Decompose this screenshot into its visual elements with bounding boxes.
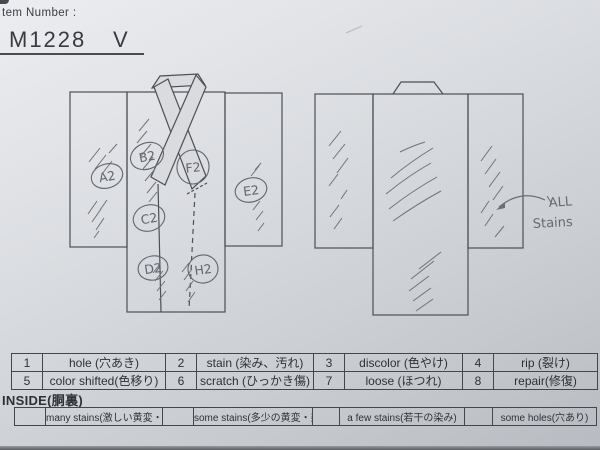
legend-label-stain: stain (染み、汚れ) bbox=[197, 354, 314, 372]
svg-text:C2: C2 bbox=[140, 210, 159, 228]
legend-num-4: 4 bbox=[463, 354, 494, 372]
svg-text:E2: E2 bbox=[242, 182, 260, 199]
legend-num-5: 5 bbox=[12, 372, 43, 390]
inside-option-some-holes: some holes(穴あり) bbox=[493, 408, 597, 426]
damage-marker-e2: E2 bbox=[232, 174, 269, 205]
legend-num-2: 2 bbox=[166, 354, 197, 372]
front-seam-line bbox=[158, 184, 161, 312]
legend-label-hole: hole (穴あき) bbox=[43, 354, 166, 372]
back-left-sleeve bbox=[315, 94, 373, 248]
legend-label-discolor: discolor (色やけ) bbox=[345, 354, 463, 372]
legend-label-rip: rip (裂け) bbox=[494, 354, 598, 372]
annotation-line1: ALL bbox=[548, 194, 573, 211]
back-hatch-marks bbox=[329, 131, 504, 311]
annotation-line2: Stains bbox=[532, 215, 573, 232]
legend-label-scratch: scratch (ひっかき傷) bbox=[197, 372, 314, 390]
damage-legend-table: 1 hole (穴あき) 2 stain (染み、汚れ) 3 discolor … bbox=[11, 353, 598, 390]
front-right-sleeve bbox=[225, 93, 282, 246]
svg-text:D2: D2 bbox=[143, 260, 162, 277]
inside-option-many-stains: many stains(激しい黄変・染み) bbox=[46, 408, 163, 426]
svg-text:H2: H2 bbox=[193, 261, 212, 278]
legend-num-3: 3 bbox=[314, 354, 345, 372]
annotation-arrow bbox=[499, 196, 545, 207]
paper-scratch-mark bbox=[346, 26, 362, 33]
legend-label-loose: loose (ほつれ) bbox=[345, 372, 463, 390]
legend-num-8: 8 bbox=[463, 372, 494, 390]
inside-checkbox-cell-2 bbox=[163, 408, 194, 426]
legend-num-6: 6 bbox=[166, 372, 197, 390]
back-right-sleeve bbox=[468, 94, 523, 248]
svg-text:F2: F2 bbox=[185, 159, 202, 176]
kimono-inspection-sheet: tem Number : M1228 V bbox=[0, 0, 600, 450]
inside-row: many stains(激しい黄変・染み) some stains(多少の黄変・… bbox=[15, 408, 597, 426]
inside-checkbox-cell-4 bbox=[465, 408, 493, 426]
legend-label-repair: repair(修復) bbox=[494, 372, 598, 390]
back-collar bbox=[393, 82, 443, 94]
inside-option-some-stains: some stains(多少の黄変・染み) bbox=[194, 408, 313, 426]
inside-option-a-few-stains: a few stains(若干の染み) bbox=[340, 408, 465, 426]
inside-condition-table: many stains(激しい黄変・染み) some stains(多少の黄変・… bbox=[14, 407, 597, 426]
legend-row-2: 5 color shifted(色移り) 6 scratch (ひっかき傷) 7… bbox=[12, 372, 598, 390]
stains-annotation: ALL Stains bbox=[496, 194, 573, 232]
legend-row-1: 1 hole (穴あき) 2 stain (染み、汚れ) 3 discolor … bbox=[12, 354, 598, 372]
inside-checkbox-cell-1 bbox=[15, 408, 46, 426]
front-damage-markers: A2 B2 C2 D2 E2 F2 bbox=[88, 138, 269, 286]
legend-num-1: 1 bbox=[12, 354, 43, 372]
legend-label-color-shifted: color shifted(色移り) bbox=[43, 372, 166, 390]
svg-text:A2: A2 bbox=[98, 168, 117, 186]
photo-bottom-edge bbox=[0, 446, 600, 450]
legend-num-7: 7 bbox=[314, 372, 345, 390]
back-kimono-outline bbox=[315, 82, 523, 315]
inside-checkbox-cell-3 bbox=[313, 408, 340, 426]
damage-marker-d2: D2 bbox=[136, 253, 170, 283]
damage-marker-c2: C2 bbox=[130, 201, 168, 236]
svg-text:B2: B2 bbox=[138, 148, 157, 166]
damage-marker-a2: A2 bbox=[88, 160, 126, 193]
